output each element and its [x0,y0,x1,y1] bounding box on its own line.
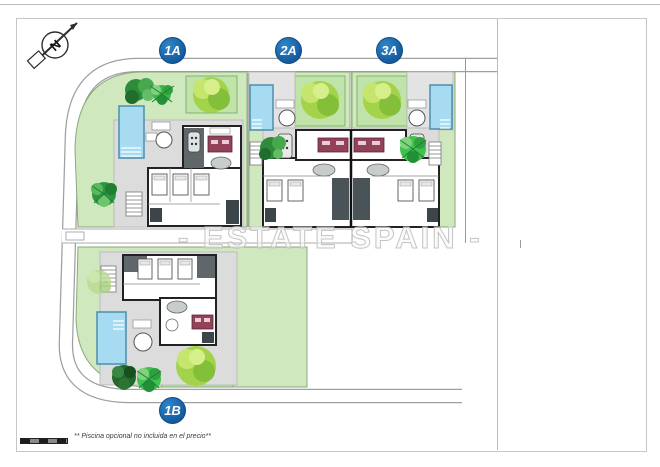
plot-badge-2a: 2A [275,37,302,64]
site-plan-sheet: N 1A 2A 3A 1B - ESTATE SPAIN - ** Piscin… [0,0,660,467]
furniture-3a [408,100,426,126]
pool-1a [119,106,144,158]
svg-text:N: N [47,37,64,54]
stairs-1a [126,192,142,216]
footnote-text: ** Piscina opcional no incluida en el pr… [74,433,211,440]
compass-north-icon: N [27,23,77,68]
stairs-3a [429,142,441,165]
tree-lime-3a [363,81,401,119]
tree-light-1b [87,270,111,294]
plot-badge-1a: 1A [159,37,186,64]
tree-lime-1b [176,346,216,386]
plot-badge-3a: 3A [376,37,403,64]
tree-dark-1a [125,78,154,104]
scale-bar [20,438,68,444]
site-plan-drawing: N [0,0,660,467]
driveway [62,229,352,243]
tree-lime-2a [301,81,339,119]
pool-2a [250,85,273,130]
pool-1b [97,312,126,364]
pool-3a [430,85,452,129]
plot-badge-1b: 1B [159,397,186,424]
palm-tree-1b-bright [137,367,161,392]
